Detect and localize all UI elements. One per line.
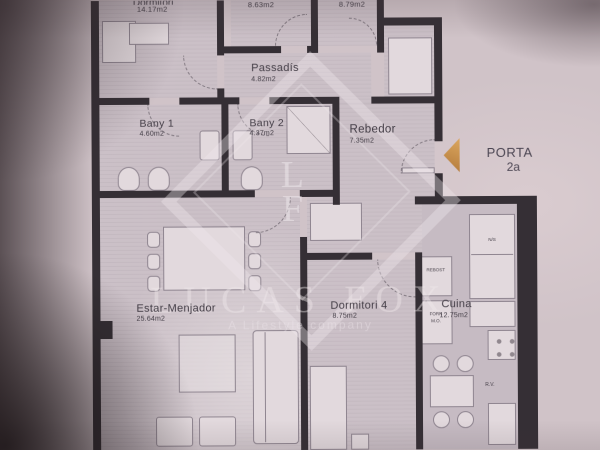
stool — [433, 411, 450, 428]
bany1-toilet — [118, 167, 140, 191]
kitchen-counter — [488, 403, 516, 445]
cooktop — [488, 330, 516, 360]
area-passadis: 4.82m2 — [251, 76, 276, 83]
label-passadis: Passadís — [251, 62, 299, 74]
entrance-arrow-icon — [444, 138, 460, 172]
area-dormitori4: 8.75m2 — [332, 313, 357, 320]
label-estar-menjador: Estar-Menjador — [136, 302, 215, 314]
wall — [371, 96, 442, 103]
wall — [307, 46, 318, 53]
bany1-sink — [200, 130, 220, 160]
wall — [517, 204, 538, 449]
kitchen-table — [430, 375, 474, 407]
floorplan-photo: L F LUCAS FOX A Lifestyle company Dormit… — [0, 0, 600, 450]
area-bany2: 4.37m2 — [250, 130, 275, 137]
entrance-label-2a: 2a — [507, 160, 520, 174]
area-estar-menjador: 25.64m2 — [136, 316, 165, 323]
bany2-toilet — [241, 166, 263, 190]
label-bany1: Bany 1 — [139, 118, 174, 130]
sofa — [253, 330, 300, 444]
hall-closet — [310, 203, 362, 241]
label-mo: M.O. — [419, 318, 452, 323]
wall — [221, 104, 228, 197]
label-rebedor: Rebedor — [349, 123, 395, 135]
wall — [377, 17, 442, 25]
chair — [147, 254, 160, 270]
wall — [300, 190, 340, 197]
wall — [99, 98, 149, 105]
floorplan: L F LUCAS FOX A Lifestyle company Dormit… — [0, 0, 600, 450]
kitchen-counter — [469, 301, 515, 327]
stool — [457, 411, 474, 428]
label-bany2: Bany 2 — [249, 117, 284, 129]
armchair — [156, 417, 193, 447]
entrance-label-porta: PORTA — [487, 145, 533, 160]
dining-table — [163, 226, 245, 290]
closet — [388, 37, 432, 94]
area-dormitori-top: 14.17m2 — [137, 5, 168, 14]
label-fridge: N/S — [471, 237, 513, 242]
wall — [307, 253, 372, 260]
wall-pillar — [93, 321, 113, 339]
chair — [147, 232, 160, 248]
wall — [100, 190, 255, 198]
chair — [248, 253, 261, 269]
label-rebost: REBOST — [419, 267, 452, 272]
area-room-third: 8.79m2 — [339, 0, 365, 9]
bany1-bidet — [148, 167, 170, 191]
stool — [433, 355, 450, 372]
chair — [248, 231, 261, 247]
rug — [179, 334, 236, 392]
fridge — [469, 214, 515, 299]
wall — [269, 97, 339, 104]
label-dormitori4: Dormitori 4 — [330, 300, 387, 312]
wardrobe — [129, 23, 169, 45]
armchair — [199, 416, 236, 446]
pantry-cabinet — [419, 256, 452, 296]
wall — [300, 237, 308, 450]
wall — [224, 46, 281, 53]
wall — [434, 17, 443, 141]
room-passadis — [224, 53, 371, 98]
wall — [217, 0, 224, 55]
label-dishwasher: R.V. — [475, 382, 505, 388]
label-forn: FORN — [419, 311, 452, 316]
stool — [457, 355, 474, 372]
label-cuina: Cuina — [441, 298, 471, 310]
wall — [179, 97, 239, 104]
wall — [415, 252, 423, 449]
nightstand — [351, 434, 369, 450]
bed — [310, 366, 347, 450]
area-bany1: 4.60m2 — [140, 131, 165, 138]
chair — [147, 276, 160, 292]
area-rebedor: 7.35m2 — [350, 138, 375, 145]
fridge-divider — [471, 254, 513, 255]
wall — [377, 0, 384, 53]
bany2-shower — [286, 106, 330, 154]
area-room-second: 8.63m2 — [248, 0, 274, 9]
chair — [248, 275, 261, 291]
